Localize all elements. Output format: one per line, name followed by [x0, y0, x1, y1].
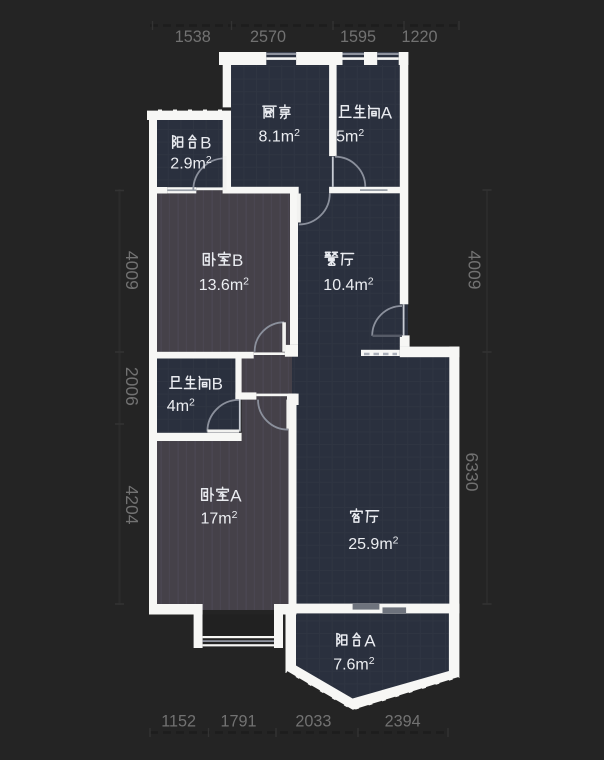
svg-text:A: A	[230, 486, 242, 505]
svg-text:2006: 2006	[122, 367, 142, 406]
svg-text:10.4m2: 10.4m2	[323, 276, 373, 294]
svg-text:A: A	[364, 632, 376, 651]
svg-text:2.9m2: 2.9m2	[170, 154, 212, 172]
svg-text:B: B	[212, 375, 223, 394]
svg-text:2394: 2394	[385, 712, 421, 730]
svg-text:B: B	[200, 134, 211, 153]
svg-text:4204: 4204	[122, 486, 142, 525]
svg-text:1595: 1595	[340, 28, 376, 46]
svg-text:1538: 1538	[175, 28, 211, 46]
svg-text:1791: 1791	[220, 712, 256, 730]
svg-text:6330: 6330	[462, 453, 482, 492]
svg-text:1152: 1152	[161, 712, 196, 730]
svg-text:B: B	[232, 251, 243, 270]
svg-text:4009: 4009	[122, 251, 142, 290]
svg-text:7.6m2: 7.6m2	[333, 655, 375, 673]
svg-text:2033: 2033	[295, 712, 331, 730]
svg-text:25.9m2: 25.9m2	[348, 535, 398, 553]
svg-text:A: A	[381, 104, 393, 123]
svg-text:1220: 1220	[401, 28, 437, 46]
svg-text:2570: 2570	[250, 28, 286, 46]
svg-text:13.6m2: 13.6m2	[199, 276, 249, 294]
svg-text:4009: 4009	[464, 251, 484, 290]
svg-text:8.1m2: 8.1m2	[259, 127, 301, 145]
